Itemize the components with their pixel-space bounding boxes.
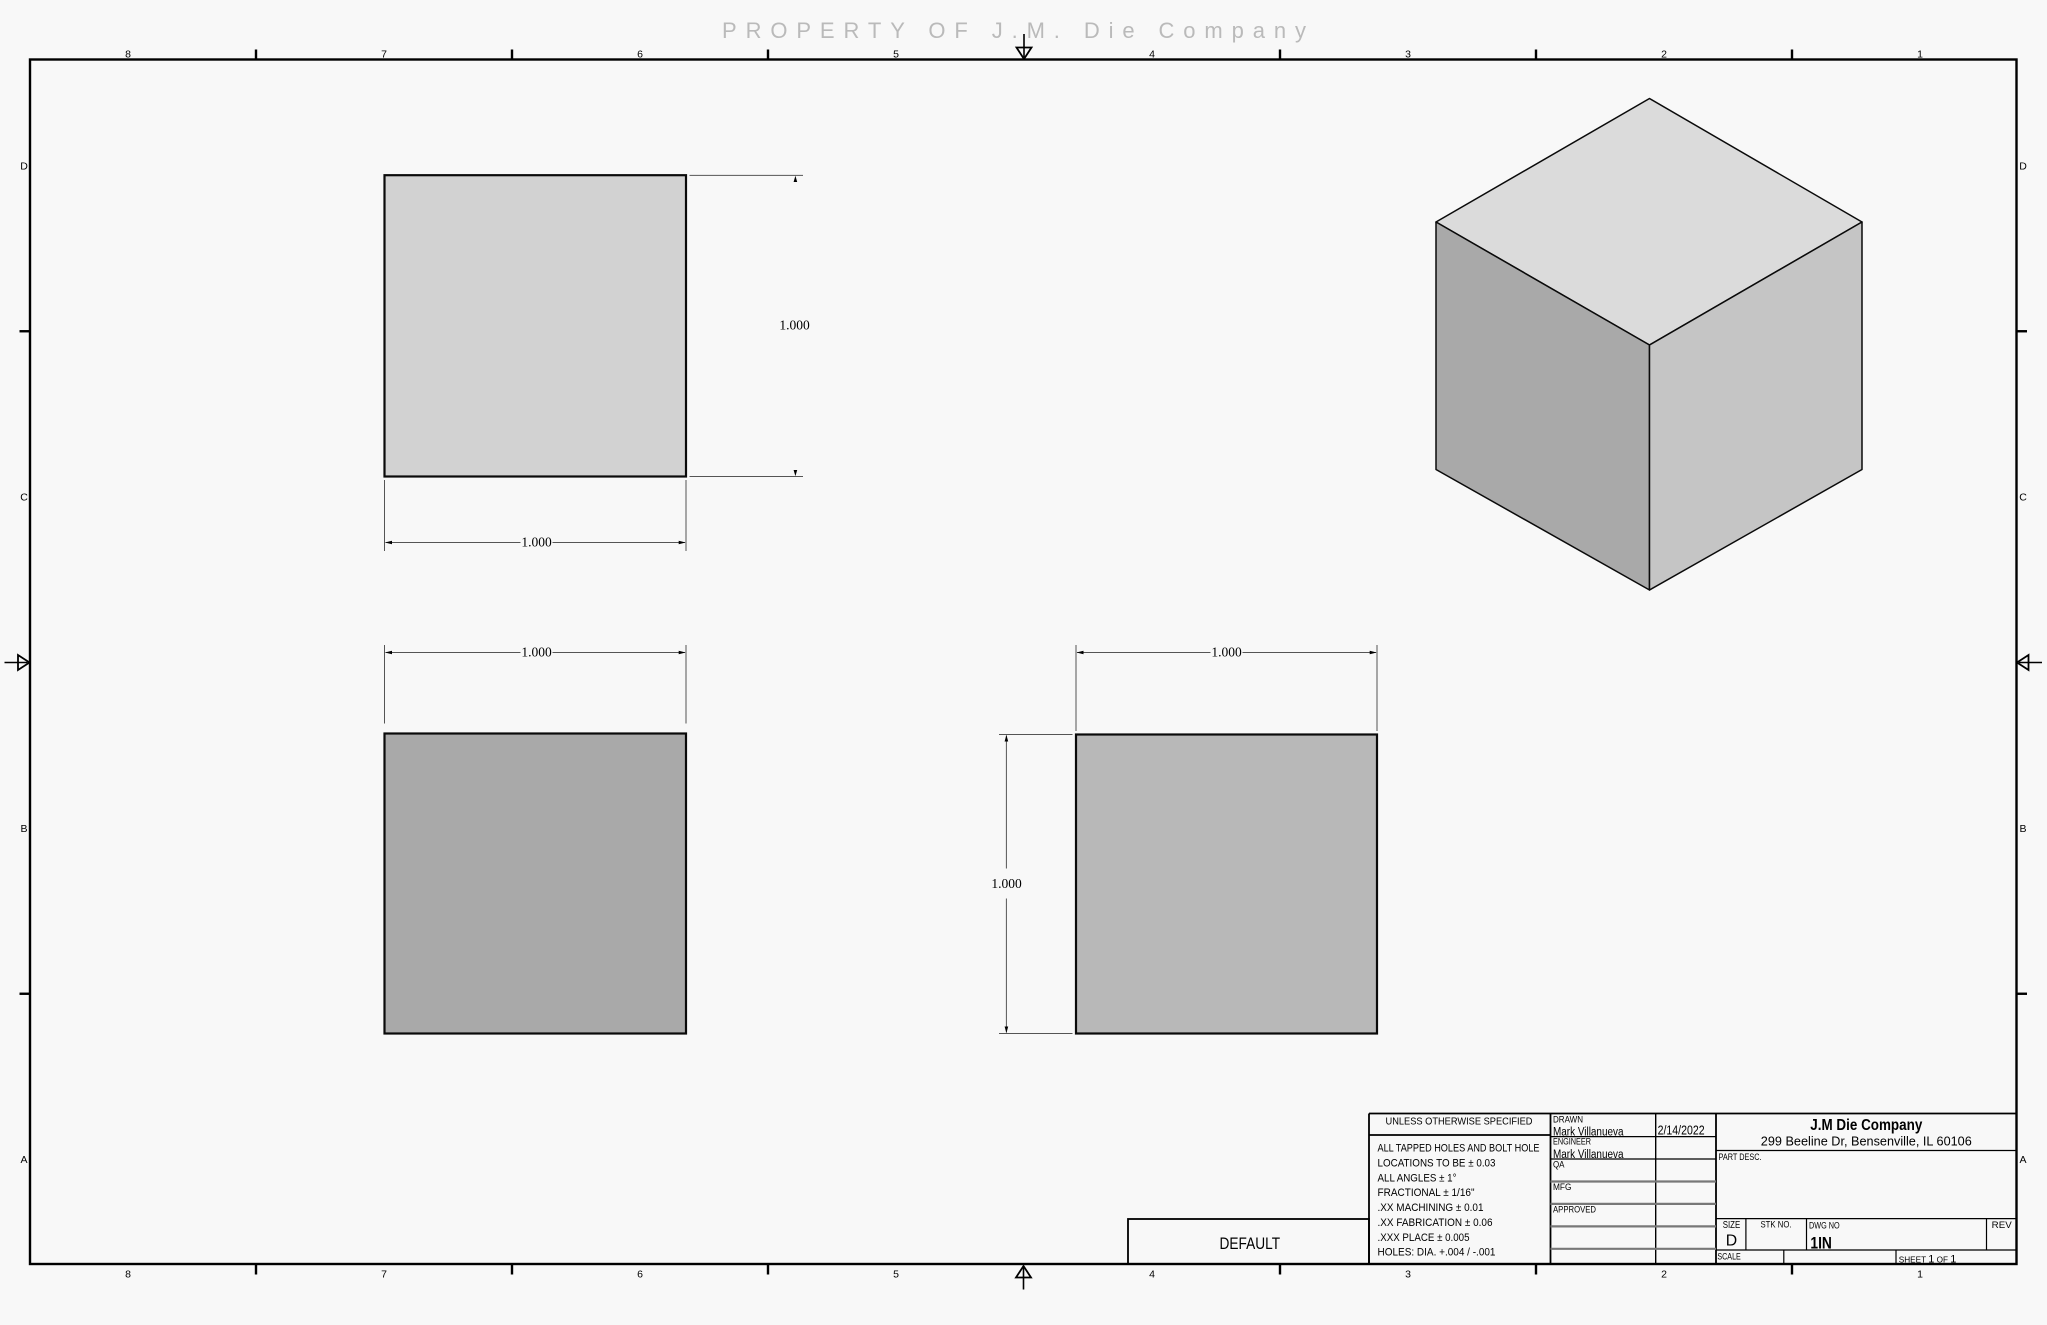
svg-text:6: 6 [637,49,643,61]
svg-text:MFG: MFG [1553,1182,1572,1192]
svg-text:B: B [20,823,27,835]
svg-text:SCALE: SCALE [1717,1251,1740,1262]
svg-text:REV: REV [1992,1220,2013,1231]
svg-text:1.000: 1.000 [521,645,552,660]
svg-text:J.M Die Company: J.M Die Company [1810,1117,1922,1134]
svg-text:299 Beeline Dr, Bensenville, I: 299 Beeline Dr, Bensenville, IL 60106 [1761,1134,1972,1149]
svg-text:D: D [1726,1233,1737,1250]
svg-text:ALL ANGLES ± 1°: ALL ANGLES ± 1° [1378,1172,1457,1184]
svg-text:STK NO.: STK NO. [1761,1220,1792,1231]
svg-text:LOCATIONS TO BE ± 0.03: LOCATIONS TO BE ± 0.03 [1378,1158,1496,1170]
svg-text:FRACTIONAL ± 1/16": FRACTIONAL ± 1/16" [1378,1187,1475,1199]
svg-text:1.000: 1.000 [779,318,810,333]
svg-text:SHEET 1 OF 1: SHEET 1 OF 1 [1899,1253,1957,1265]
svg-text:PART DESC.: PART DESC. [1719,1152,1762,1162]
svg-text:6: 6 [637,1269,643,1281]
svg-text:3: 3 [1405,49,1411,61]
svg-text:8: 8 [125,49,131,61]
svg-text:UNLESS OTHERWISE SPECIFIED: UNLESS OTHERWISE SPECIFIED [1386,1116,1533,1127]
svg-text:2: 2 [1661,49,1667,61]
svg-text:2: 2 [1661,1269,1667,1281]
svg-text:A: A [2019,1154,2026,1166]
svg-text:1.000: 1.000 [521,535,552,550]
svg-text:ALL TAPPED HOLES AND BOLT HOLE: ALL TAPPED HOLES AND BOLT HOLE [1378,1143,1540,1155]
svg-text:1: 1 [1917,1269,1923,1281]
svg-text:1: 1 [1917,49,1923,61]
svg-text:4: 4 [1149,49,1155,61]
svg-text:C: C [2019,492,2027,504]
svg-text:2/14/2022: 2/14/2022 [1658,1124,1705,1138]
svg-text:5: 5 [893,1269,899,1281]
svg-text:7: 7 [381,1269,387,1281]
svg-text:DRAWN: DRAWN [1553,1115,1583,1125]
svg-text:1.000: 1.000 [1211,645,1242,660]
svg-text:1.000: 1.000 [991,876,1022,891]
svg-text:PROPERTY OF J.M. Die Company: PROPERTY OF J.M. Die Company [722,18,1306,43]
svg-text:B: B [2019,823,2026,835]
svg-text:.XX FABRICATION ± 0.06: .XX FABRICATION ± 0.06 [1378,1217,1493,1229]
svg-text:5: 5 [893,49,899,61]
svg-text:.XX MACHINING ± 0.01: .XX MACHINING ± 0.01 [1378,1202,1484,1214]
svg-text:4: 4 [1149,1269,1155,1281]
svg-text:Mark Villanueva: Mark Villanueva [1553,1149,1624,1161]
svg-text:HOLES: DIA. +.004 / -.001: HOLES: DIA. +.004 / -.001 [1378,1247,1496,1259]
svg-text:DEFAULT: DEFAULT [1220,1234,1281,1253]
svg-text:8: 8 [125,1269,131,1281]
svg-text:C: C [20,492,28,504]
svg-text:D: D [2019,161,2027,173]
svg-text:.XXX PLACE ± 0.005: .XXX PLACE ± 0.005 [1378,1232,1470,1244]
svg-text:DWG NO: DWG NO [1809,1220,1840,1231]
svg-text:Mark Villanueva: Mark Villanueva [1553,1127,1624,1139]
svg-text:APPROVED: APPROVED [1553,1204,1596,1214]
svg-text:3: 3 [1405,1269,1411,1281]
svg-text:D: D [20,161,28,173]
svg-text:SIZE: SIZE [1723,1220,1741,1231]
svg-text:A: A [20,1154,27,1166]
svg-text:7: 7 [381,49,387,61]
